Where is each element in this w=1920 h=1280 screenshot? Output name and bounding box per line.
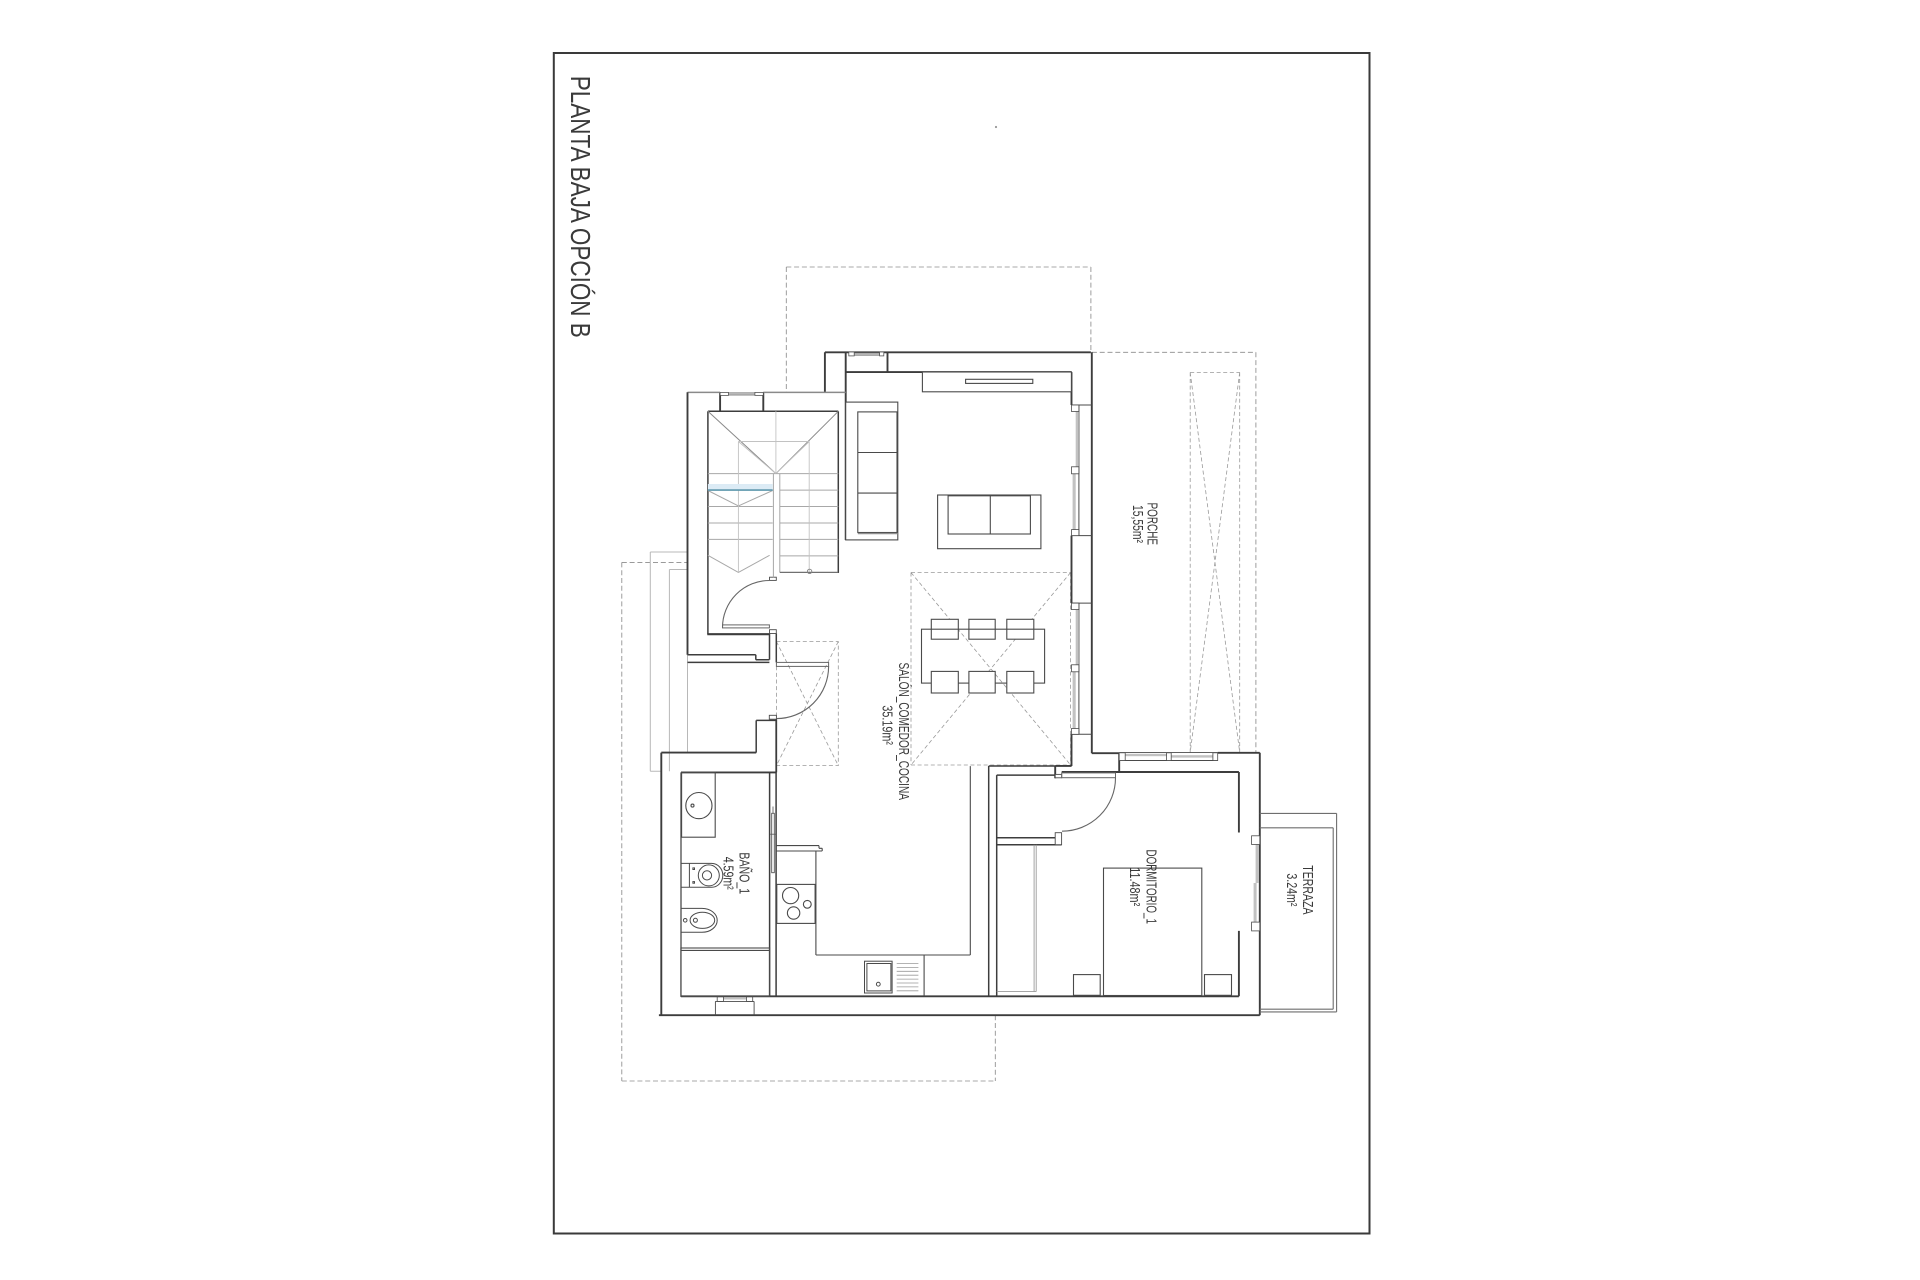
svg-text:SALÓN_COMEDOR_COCINA: SALÓN_COMEDOR_COCINA [895,663,912,801]
svg-text:35.19m²: 35.19m² [878,705,895,745]
svg-text:11.48m²: 11.48m² [1126,867,1142,906]
svg-text:TERRAZA: TERRAZA [1299,865,1315,914]
svg-text:4.59m²: 4.59m² [720,857,736,890]
svg-text:3.24m²: 3.24m² [1283,873,1299,906]
svg-text:PLANTA BAJA OPCIÓN B: PLANTA BAJA OPCIÓN B [565,76,596,338]
svg-text:BAÑO_1: BAÑO_1 [736,852,753,894]
svg-text:15,55m²: 15,55m² [1129,505,1145,543]
svg-text:DORMITORIO_1: DORMITORIO_1 [1143,850,1159,924]
